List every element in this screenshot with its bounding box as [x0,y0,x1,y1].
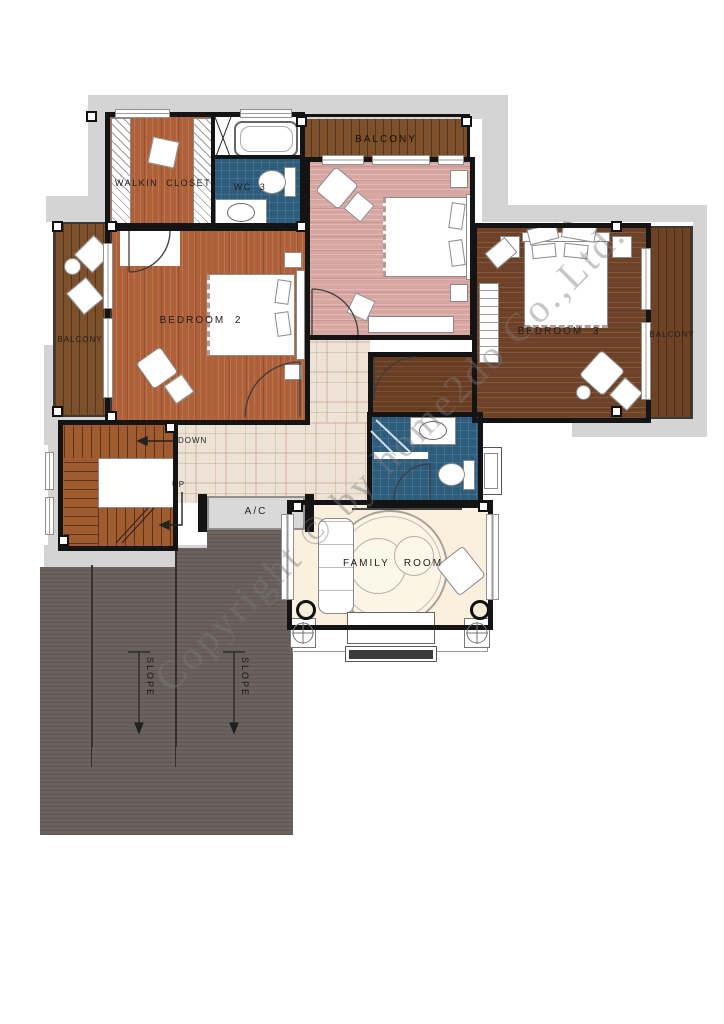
window [641,248,651,310]
eave-band-right [693,218,707,437]
hall-floor [307,337,370,422]
column-marker [52,406,63,417]
column-marker [52,221,63,232]
window [372,155,430,165]
bedroom2-label: BEDROOM 2 [141,315,261,326]
column-marker [292,501,303,512]
balcony-left-label: BALCONY [45,335,115,344]
roof-ridge-line [91,565,93,747]
column-marker [296,116,307,127]
planter-fill [349,650,433,659]
roof-ridge-line [91,747,92,767]
bedroom3-entry-floor [370,355,477,417]
wc2-walls [367,412,483,508]
window [45,497,54,535]
floor-plan-canvas: WALKIN CLOSET WC 3 BALCONY BALCONY BALCO… [0,0,724,1024]
roof-ridge-line [175,747,176,767]
wc3-label: WC 3 [220,182,280,192]
stairwell-walls [58,420,178,551]
column-marker [86,111,97,122]
wall-segment [213,155,301,159]
window-bay [486,514,499,600]
column-marker [58,535,69,546]
eave-band-above-bedroom3 [482,205,707,222]
wall-segment [368,352,373,417]
walkin-wc3-walls [105,112,305,231]
column-marker [106,221,117,232]
column-marker [611,221,622,232]
sliding-door [103,243,113,309]
column-marker [165,422,176,433]
window [438,155,464,165]
bedroom3-walls [472,223,651,423]
family-room-label: FAMILY ROOM [323,558,463,569]
column-marker [478,501,489,512]
wall-segment [211,115,215,227]
eave-band-above-left-balcony [46,196,110,222]
wall-segment [368,352,477,357]
window-bay [281,514,294,600]
balcony-right-rail [648,226,693,419]
window [45,452,54,490]
down-label: DOWN [178,436,218,445]
up-label: UP [172,480,196,489]
column-marker [611,406,622,417]
vent-box-inner [484,453,498,489]
roof-slope-area [40,530,293,835]
column-marker [296,221,307,232]
eave-band-top-right [482,95,508,210]
balcony-right-label: BALCONY [634,330,710,339]
column-marker [461,116,472,127]
bedroom3-label: BEDROOM 3 [499,326,619,337]
wall-segment [198,494,207,532]
ac-label: A/C [226,506,286,517]
window [115,109,170,118]
roof-ridge-line [175,548,177,747]
balcony-top-label: BALCONY [336,134,436,145]
wall-segment [305,494,314,532]
sliding-door [103,318,113,398]
master-bedroom-walls [305,157,475,340]
slope-label: SLOPE [238,655,252,699]
column-marker [106,411,117,422]
window [322,155,364,165]
window [240,109,292,118]
walkin-closet-label: WALKIN CLOSET [107,178,219,188]
slope-label: SLOPE [143,655,157,699]
hall-floor [176,422,370,503]
